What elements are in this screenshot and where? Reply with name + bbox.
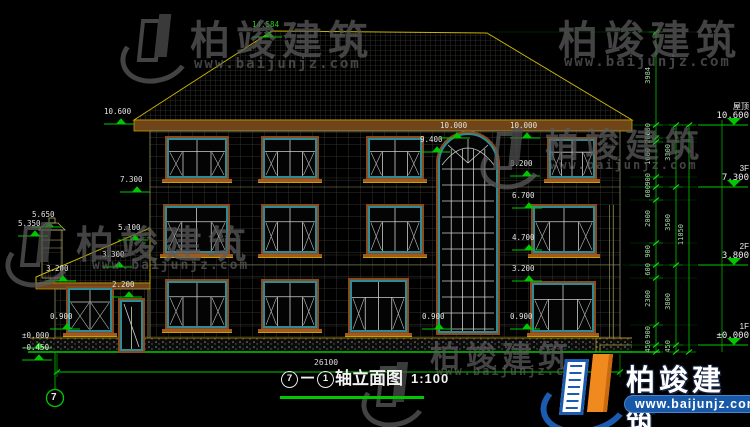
elevation-mark: 4.700 [512,234,542,251]
elevation-flag-icon [510,321,540,330]
window-mullions [265,283,315,326]
elevation-mark: 2.200 [112,281,142,298]
level-value: 3.800 [697,251,749,261]
elevation-value: 10.600 [104,107,131,116]
elevation-mark: 0.900 [510,313,540,330]
elevation-mark: 10.600 [104,108,134,125]
elevation-value: 0.900 [510,312,533,321]
window [368,138,422,178]
elevation-flag-icon [120,184,150,193]
dimension-label: 2000 [645,210,652,227]
title-scale: 1:100 [411,369,449,389]
elevation-value: 0.900 [50,312,73,321]
elevation-flag-icon [512,242,542,251]
dimension-label: 450 [665,340,672,353]
axis-start-bubble: 7 [281,371,298,388]
elevation-flag-icon [440,130,470,139]
elevation-flag-icon [50,321,80,330]
dimension-label: 900 [645,245,652,258]
elevation-value: 3.200 [512,264,535,273]
window [263,138,317,178]
window-mullions [169,283,225,326]
window-mullions [122,302,141,349]
level-name: 屋顶 [697,102,749,111]
dimension-label: 11050 [678,224,685,245]
dimension-label: 600 [645,263,652,276]
window [167,281,227,328]
level-flag: 2F3.800 [697,242,749,261]
watermark-logo-icon [128,14,182,71]
elevation-mark: 10.000 [440,122,470,139]
dimension-label: 3800 [665,293,672,310]
title-name: 轴立面图 [335,369,403,389]
elevation-mark: 0.900 [50,313,80,330]
dimension-label: 900 [645,326,652,339]
window [167,138,227,178]
window-mullions [535,208,593,251]
level-name: 1F [697,322,749,331]
window-mullions [265,208,315,251]
title-underline [280,396,424,399]
brand-logo-icon [544,354,624,424]
watermark-url: www.baijunjz.com [92,258,249,273]
cad-elevation-drawing: 7－1轴立面图1:100 7 26100 柏竣建筑 www.baijunjz.c… [0,0,750,427]
window-mullions [370,140,420,176]
dimension-label: 2300 [645,290,652,307]
window [368,206,422,253]
level-value: ±0.000 [697,331,749,341]
watermark-logo-icon [486,128,532,176]
window-mullions [370,208,420,251]
elevation-flag-icon [422,321,452,330]
window [532,283,594,332]
watermark-url: www.baijunjz.com [194,56,361,72]
elevation-flag-icon [104,116,134,125]
elevation-mark: 7.300 [120,176,150,193]
elevation-value: 0.900 [422,312,445,321]
elevation-value: 4.700 [512,233,535,242]
window [263,281,317,328]
elevation-flag-icon [420,144,450,153]
brand-website-url: www.baijunjz.com [624,395,750,413]
elevation-flag-icon [512,273,542,282]
elevation-mark: 3.200 [512,265,542,282]
elevation-mark: 6.700 [512,192,542,209]
dimension-label: 3500 [665,214,672,231]
level-flag: 1F±0.000 [697,322,749,341]
axis-bubble-number: 7 [51,392,57,403]
elevation-value: ±0.000 [22,331,49,340]
elevation-value: 7.300 [120,175,143,184]
elevation-value: 10.000 [440,121,467,130]
window-mullions [265,140,315,176]
elevation-mark: 0.900 [422,313,452,330]
watermark-url: www.baijunjz.com [550,158,698,172]
drawing-title: 7－1轴立面图1:100 [280,369,449,389]
watermark-logo-icon [12,222,62,275]
title-dash: － [299,369,316,389]
elevation-value: 5.650 [32,210,55,219]
window-mullions [169,140,225,176]
watermark-url: www.baijunjz.com [564,54,731,70]
elevation-mark: -0.450 [22,344,52,361]
elevation-flag-icon [22,352,52,361]
elevation-value: -0.450 [22,343,49,352]
dimension-label: 600 [645,185,652,198]
elevation-flag-icon [512,200,542,209]
level-value: 7.300 [697,173,749,183]
window-mullions [352,282,405,330]
brand-block: 柏竣建筑 www.baijunjz.com [544,352,750,427]
elevation-value: 6.700 [512,191,535,200]
elevation-value: 2.200 [112,280,135,289]
window [263,206,317,253]
level-name: 2F [697,242,749,251]
window-mullions [534,285,592,330]
bottom-dimension-value: 26100 [314,358,338,367]
dimension-label: 450 [645,340,652,353]
window [350,280,407,332]
door [120,300,143,351]
elevation-flag-icon [112,289,142,298]
brand-company-name: 柏竣建筑 [626,357,750,427]
axis-end-bubble: 1 [317,371,334,388]
window [533,206,595,253]
